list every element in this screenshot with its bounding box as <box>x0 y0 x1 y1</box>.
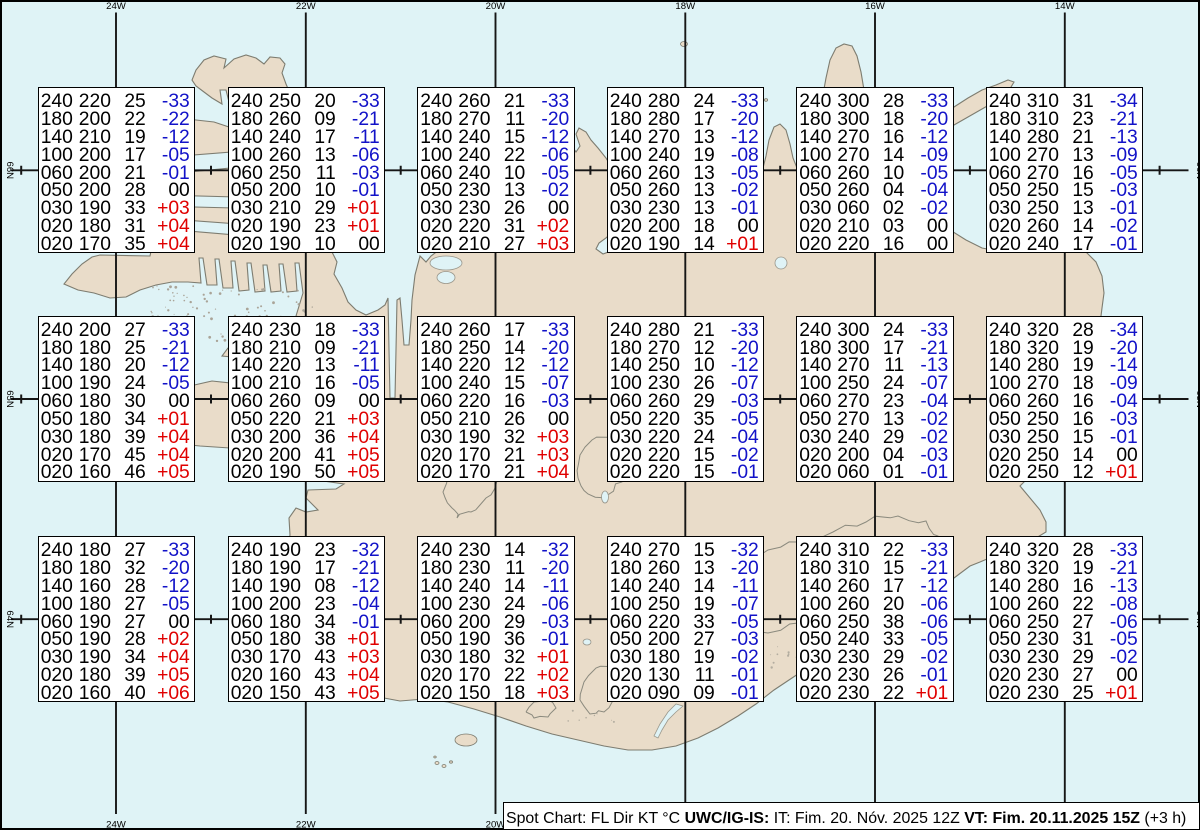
svg-text:16W: 16W <box>865 1 886 12</box>
svg-text:22W: 22W <box>296 1 317 12</box>
svg-text:14W: 14W <box>1055 1 1076 12</box>
svg-text:24W: 24W <box>106 1 127 12</box>
svg-text:20W: 20W <box>486 1 507 12</box>
svg-text:66N: 66N <box>4 161 15 179</box>
svg-text:18W: 18W <box>675 1 696 12</box>
svg-text:65N: 65N <box>4 390 15 408</box>
svg-text:64N: 64N <box>4 610 15 628</box>
